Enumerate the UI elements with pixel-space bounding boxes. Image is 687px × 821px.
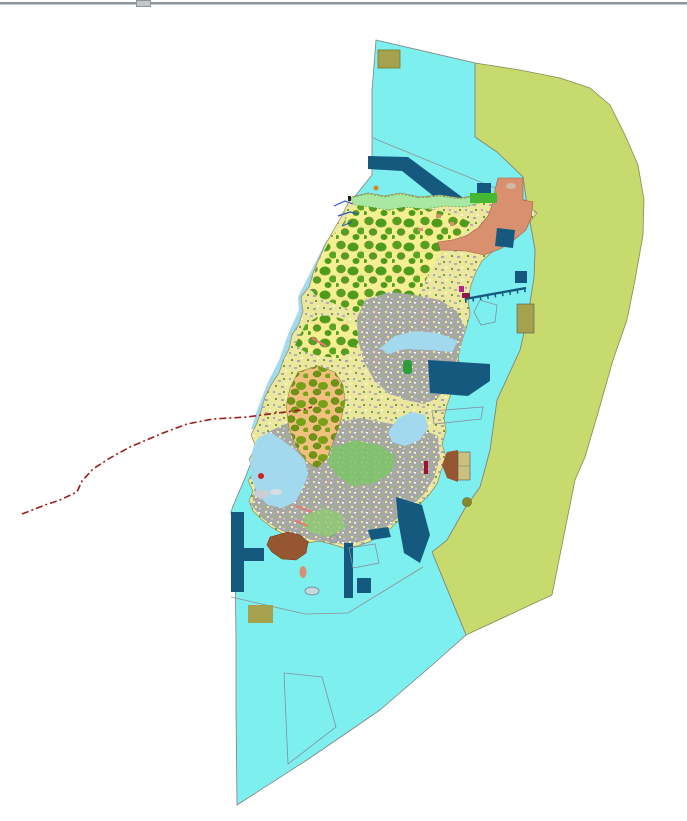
map-viewport[interactable]	[0, 0, 687, 821]
pier-strip-south	[344, 543, 353, 598]
harbor-pier-ne	[495, 228, 515, 248]
islet-outlined	[305, 587, 319, 595]
small-green-patch	[403, 360, 412, 374]
red-coast-dot	[258, 473, 264, 479]
salmon-pale-dot	[506, 183, 516, 189]
khaki-parcel-south	[248, 605, 273, 623]
islet-salmon	[300, 566, 307, 578]
salmon-dot-3	[418, 228, 423, 231]
olive-islet	[463, 498, 472, 507]
pier-square-south	[357, 578, 371, 593]
maroon-mark	[462, 293, 470, 298]
magenta-mark	[459, 286, 464, 292]
khaki-parcel-east	[517, 304, 534, 333]
salmon-dot-1	[436, 214, 441, 218]
black-tick	[348, 196, 351, 201]
shoal-gray-2	[270, 489, 282, 495]
map-canvas[interactable]	[0, 0, 687, 821]
navy-parcel-east	[515, 271, 527, 283]
shoal-gray-1	[254, 490, 270, 498]
crimson-mark	[424, 461, 428, 474]
khaki-parcel-north	[378, 50, 400, 68]
salmon-dot-2	[450, 222, 454, 226]
bright-green-parcel-ne	[470, 193, 497, 203]
harbor-t-west-arm	[242, 548, 264, 561]
orange-dot	[374, 186, 379, 191]
